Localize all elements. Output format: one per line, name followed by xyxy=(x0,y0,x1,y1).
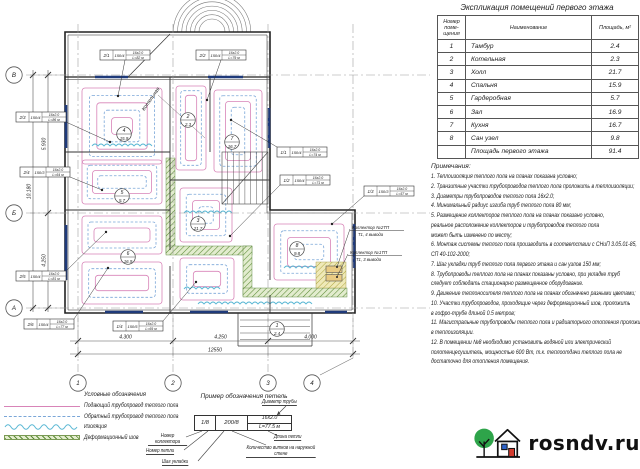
room-name-cell: Гардеробная xyxy=(466,92,592,105)
svg-text:L=69 м: L=69 м xyxy=(145,327,157,331)
svg-text:5: 5 xyxy=(121,190,124,196)
svg-text:5.930: 5.930 xyxy=(42,138,48,151)
svg-text:В: В xyxy=(12,72,16,79)
svg-text:6: 6 xyxy=(127,251,130,257)
label-laying-step: Шаг укладки xyxy=(162,459,188,466)
svg-text:2/1: 2/1 xyxy=(103,53,111,58)
room-number-cell: 2 xyxy=(438,53,466,66)
room-table-row: 8Сан узел9.8 xyxy=(438,132,639,145)
svg-text:150/4: 150/4 xyxy=(30,115,41,120)
room-table: Номер поме- щенияНаименованиеПлощадь, м²… xyxy=(437,15,639,159)
svg-text:150/4: 150/4 xyxy=(38,322,49,327)
svg-text:4.250: 4.250 xyxy=(214,335,227,341)
svg-text:Котельная: Котельная xyxy=(141,86,162,112)
room-table-header-cell: Площадь, м² xyxy=(592,16,639,40)
room-table-row: 6Зал16.9 xyxy=(438,105,639,118)
room-number-cell: 3 xyxy=(438,66,466,79)
svg-text:16х2.0: 16х2.0 xyxy=(49,113,60,117)
svg-text:150/4: 150/4 xyxy=(291,150,302,155)
room-number-cell: 1 xyxy=(438,40,466,53)
watermark-text: rosndv.ru xyxy=(528,431,640,455)
room-table-header: Номер поме- щенияНаименованиеПлощадь, м² xyxy=(438,16,639,40)
note-line: СП 40-102-2000; xyxy=(431,250,602,260)
loop-cell-pipe: 16х2.0 L=77.5 м xyxy=(247,416,291,430)
room-name-cell: Котельная xyxy=(466,53,592,66)
room-area-cell: 2.4 xyxy=(592,40,639,53)
svg-text:3: 3 xyxy=(197,218,200,224)
svg-text:Т1, 4 вывода: Т1, 4 вывода xyxy=(358,232,384,237)
loop-cell-step-turns: 200/8 xyxy=(215,416,247,430)
room-number-cell: 8 xyxy=(438,132,466,145)
svg-text:2: 2 xyxy=(186,114,190,120)
svg-text:1/1: 1/1 xyxy=(281,150,288,155)
note-line: 12. В помещении №8 необходимо установить… xyxy=(431,338,602,348)
svg-text:16х2.0: 16х2.0 xyxy=(57,320,68,324)
loop-designation-box: 1/8 200/8 16х2.0 L=77.5 м xyxy=(194,415,292,431)
note-line: следует соблюдать стационарно размещенно… xyxy=(431,279,602,289)
svg-text:L=74 м: L=74 м xyxy=(309,153,321,157)
loop-cell-collector-loop: 1/8 xyxy=(195,416,215,430)
svg-text:1/3: 1/3 xyxy=(368,189,375,194)
svg-text:2/2: 2/2 xyxy=(199,53,207,58)
svg-text:4.300: 4.300 xyxy=(119,335,132,341)
room-name-cell: Сан узел xyxy=(466,132,592,145)
svg-text:3: 3 xyxy=(266,380,270,387)
svg-text:Т1, 3 вывода: Т1, 3 вывода xyxy=(356,257,382,262)
svg-text:L=79 м: L=79 м xyxy=(228,56,240,60)
svg-text:2/6: 2/6 xyxy=(27,322,35,327)
room-name-cell: Кухня xyxy=(466,119,592,132)
svg-text:Б: Б xyxy=(12,210,16,217)
room-area-cell: 2.3 xyxy=(592,53,639,66)
room-number-cell: 7 xyxy=(438,119,466,132)
svg-text:L=81 м: L=81 м xyxy=(48,277,60,281)
svg-text:16х2.0: 16х2.0 xyxy=(397,187,408,191)
room-number-cell: 6 xyxy=(438,105,466,118)
loop-cell-pipe-diameter: 16х2.0 xyxy=(248,415,291,424)
room-table-header-cell: Наименование xyxy=(466,16,592,40)
svg-text:L=57 м: L=57 м xyxy=(396,192,408,196)
note-line: 3. Диаметры трубопроводов теплого пола 1… xyxy=(431,192,602,202)
svg-text:16.9: 16.9 xyxy=(124,259,133,264)
label-turns-outer-wall: Количество витков на наружной стене xyxy=(246,445,316,458)
legend-sample-supply xyxy=(4,406,84,407)
room-name-cell: Тамбур xyxy=(466,40,592,53)
svg-text:9.8: 9.8 xyxy=(294,251,301,256)
svg-text:150/3: 150/3 xyxy=(34,170,45,175)
notes-lines: 1. Теплоизоляция теплого пола на планах … xyxy=(431,172,640,367)
svg-text:10.180: 10.180 xyxy=(27,184,33,200)
svg-text:16х2.0: 16х2.0 xyxy=(313,176,324,180)
note-line: 8. Трубопроводы теплого пола на планах п… xyxy=(431,270,602,280)
note-line: 2. Транзитные участки трубопроводов тепл… xyxy=(431,182,602,192)
room-area-cell: 16.7 xyxy=(592,119,639,132)
svg-text:2: 2 xyxy=(170,380,175,387)
note-line: 4. Минимальный радиус изгиба труб теплог… xyxy=(431,201,602,211)
label-loop-length: Длина петли xyxy=(274,434,301,441)
note-line: реальное расположение коллекторов и труб… xyxy=(431,221,602,231)
room-number-cell xyxy=(438,145,466,158)
room-table-row: 7Кухня16.7 xyxy=(438,119,639,132)
room-area-cell: 21.7 xyxy=(592,66,639,79)
room-table-row: 1Тамбур2.4 xyxy=(438,40,639,53)
label-loop-number: Номер петли xyxy=(146,448,174,455)
room-table-row: 5Гардеробная5.7 xyxy=(438,92,639,105)
svg-text:21.7: 21.7 xyxy=(193,226,203,231)
room-name-cell: Зал xyxy=(466,105,592,118)
room-table-row: 4Спальня15.9 xyxy=(438,79,639,92)
svg-text:16х2.0: 16х2.0 xyxy=(146,322,157,326)
room-table-header-cell: Номер поме- щения xyxy=(438,16,466,40)
legend-label: Изоляция xyxy=(84,424,107,430)
legend-sample-return xyxy=(4,416,84,417)
svg-text:1/2: 1/2 xyxy=(284,178,291,183)
svg-text:150/4: 150/4 xyxy=(294,178,305,183)
legend-sample-insulation xyxy=(4,423,84,431)
svg-text:Коллектор №2ТП: Коллектор №2ТП xyxy=(352,225,390,230)
svg-text:150/5: 150/5 xyxy=(127,324,138,329)
legend-sample-joint xyxy=(4,435,84,440)
loop-cell-pipe-length: L=77.5 м xyxy=(248,424,291,432)
svg-text:12550: 12550 xyxy=(208,348,222,354)
room-name-cell: Холл xyxy=(466,66,592,79)
legend-label: Деформационный шов xyxy=(84,435,139,441)
note-line: в гофро-трубе длиной 0.5 метров; xyxy=(431,309,602,319)
svg-text:16.7: 16.7 xyxy=(228,144,237,149)
svg-text:L=77 м: L=77 м xyxy=(56,325,68,329)
loop-designation-example: Пример обозначения петель 1/8 200/8 16х2… xyxy=(146,393,342,469)
logo-house-door xyxy=(509,448,515,456)
room-table-body: 1Тамбур2.42Котельная2.33Холл21.74Спальня… xyxy=(438,40,639,159)
svg-text:4: 4 xyxy=(310,380,314,387)
svg-text:16х2.0: 16х2.0 xyxy=(310,148,321,152)
note-line: полотенцесушитель, мощностью 600 Вт, т.к… xyxy=(431,348,602,358)
room-table-row: 2Котельная2.3 xyxy=(438,53,639,66)
note-line: 10. Участки трубопроводов, проходящие че… xyxy=(431,299,602,309)
note-line: в теплоизоляции. xyxy=(431,328,602,338)
room-number-cell: 5 xyxy=(438,92,466,105)
logo-house-window xyxy=(502,444,507,449)
room-table-row: 3Холл21.7 xyxy=(438,66,639,79)
svg-text:15.9: 15.9 xyxy=(120,136,129,141)
svg-text:1/4: 1/4 xyxy=(117,324,124,329)
room-area-cell: 16.9 xyxy=(592,105,639,118)
room-area-cell: 9.8 xyxy=(592,132,639,145)
room-name-cell: Площадь первого этажа xyxy=(466,145,592,158)
svg-text:А: А xyxy=(11,305,16,312)
loop-example-title: Пример обозначения петель xyxy=(146,393,342,400)
svg-text:1: 1 xyxy=(76,380,79,387)
svg-text:150/4: 150/4 xyxy=(114,53,125,58)
room-name-cell: Спальня xyxy=(466,79,592,92)
label-collector-number: Номер коллектора xyxy=(148,433,187,446)
watermark[interactable]: rosndv.ru xyxy=(468,416,640,469)
room-table-row: Площадь первого этажа91.4 xyxy=(438,145,639,158)
note-line: 6. Монтаж системы теплого пола производи… xyxy=(431,240,602,250)
note-line: может быть изменено по месту; xyxy=(431,231,602,241)
svg-text:L=71 м: L=71 м xyxy=(312,181,324,185)
svg-text:L=86 м: L=86 м xyxy=(48,118,60,122)
room-area-cell: 5.7 xyxy=(592,92,639,105)
svg-text:5.7: 5.7 xyxy=(119,198,126,203)
svg-text:8: 8 xyxy=(296,243,299,249)
note-line: достаточно для отопления помещения. xyxy=(431,357,602,367)
svg-text:7: 7 xyxy=(231,136,234,142)
label-pipe-diameter: Диаметр трубы xyxy=(262,399,297,406)
notes-title: Примечания: xyxy=(431,162,640,172)
svg-text:4.250: 4.250 xyxy=(42,254,48,267)
notes-block: Примечания: 1. Теплоизоляция теплого пол… xyxy=(431,162,640,367)
logo-house-roof xyxy=(495,429,520,441)
svg-text:2/5: 2/5 xyxy=(19,274,27,279)
svg-text:150/4: 150/4 xyxy=(210,53,221,58)
note-line: 1. Теплоизоляция теплого пола на планах … xyxy=(431,172,602,182)
svg-text:2/3: 2/3 xyxy=(19,115,27,120)
room-table-title: Экспликация помещений первого этажа xyxy=(436,3,638,12)
rosndv-logo xyxy=(474,421,522,465)
room-number-cell: 4 xyxy=(438,79,466,92)
note-line: 11. Магистральные трубопроводы теплого п… xyxy=(431,318,602,328)
room-area-cell: 91.4 xyxy=(592,145,639,158)
svg-text:2.4: 2.4 xyxy=(273,331,281,336)
svg-text:16х2.0: 16х2.0 xyxy=(53,168,64,172)
svg-text:2.3: 2.3 xyxy=(184,122,192,127)
svg-text:L=82 м: L=82 м xyxy=(132,56,144,60)
svg-text:16х2.0: 16х2.0 xyxy=(49,272,60,276)
svg-text:L=64 м: L=64 м xyxy=(52,173,64,177)
svg-text:150/4: 150/4 xyxy=(30,274,41,279)
svg-text:16х2.0: 16х2.0 xyxy=(133,51,144,55)
svg-text:1: 1 xyxy=(276,323,279,329)
note-line: 9. Движение теплоносителя теплого пола н… xyxy=(431,289,602,299)
svg-text:4.000: 4.000 xyxy=(304,335,317,341)
svg-text:16х2.0: 16х2.0 xyxy=(229,51,240,55)
svg-text:2/4: 2/4 xyxy=(23,170,31,175)
svg-text:Коллектор №1ТП: Коллектор №1ТП xyxy=(350,250,388,255)
note-line: 7. Шаг укладки труб теплого пола первого… xyxy=(431,260,602,270)
note-line: 5. Размещение коллекторов теплого пола н… xyxy=(431,211,602,221)
svg-text:4: 4 xyxy=(123,128,126,134)
room-area-cell: 15.9 xyxy=(592,79,639,92)
svg-text:150/3: 150/3 xyxy=(378,189,389,194)
